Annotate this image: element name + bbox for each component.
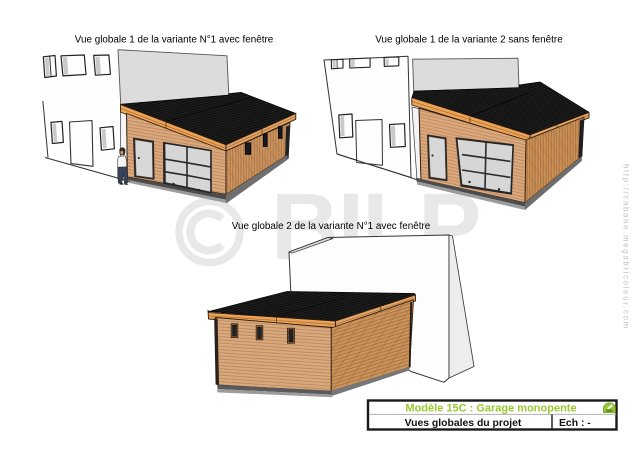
svg-text:Vue globale 1 de la variante 2: Vue globale 1 de la variante 2 sans fenê… (375, 35, 563, 46)
svg-text:Vue globale 2 de la variante N: Vue globale 2 de la variante N°1 avec fe… (232, 221, 431, 232)
svg-text:http://cabane.megabricoleur.co: http://cabane.megabricoleur.com (622, 164, 631, 330)
svg-text:Ech : -: Ech : - (559, 418, 591, 429)
svg-text:Vues globales du projet: Vues globales du projet (405, 418, 522, 429)
svg-text:Vue globale 1 de la variante N: Vue globale 1 de la variante N°1 avec fe… (75, 35, 274, 46)
svg-text:Modèle 15C : Garage monopente: Modèle 15C : Garage monopente (405, 402, 576, 414)
